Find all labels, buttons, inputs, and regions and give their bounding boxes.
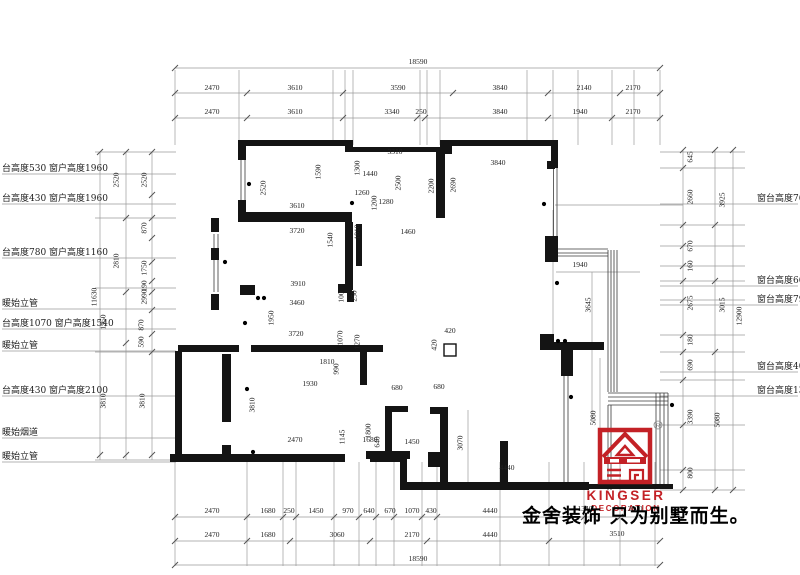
window-note-label: 窗台高度760 xyxy=(757,191,800,204)
wall-segment xyxy=(175,351,182,462)
wall-segment xyxy=(547,161,555,169)
reference-dot xyxy=(556,339,560,343)
wall-segment xyxy=(222,354,231,422)
wall-segment xyxy=(238,146,246,160)
slogan-text: 金舍装饰 只为别墅而生。 xyxy=(522,501,750,528)
dimension-label: 3610 xyxy=(288,107,303,116)
logo-house-icon xyxy=(600,430,650,482)
window-note-label: 暖始立管 xyxy=(2,449,38,462)
wall-segment xyxy=(238,200,246,213)
wall-segment xyxy=(452,140,558,146)
dimension-label: 11630 xyxy=(90,288,99,306)
dimension-label: 3060 xyxy=(330,530,345,539)
dimension-label: 1930 xyxy=(303,379,318,388)
wall-segment xyxy=(400,482,589,490)
wall-segment xyxy=(385,406,392,454)
reference-dot xyxy=(569,395,573,399)
dimension-label: 3015 xyxy=(718,298,727,313)
dimension-label: 18590 xyxy=(409,57,428,66)
dimension-label: 3840 xyxy=(493,107,508,116)
reference-dot xyxy=(251,450,255,454)
dimension-label: 1300 xyxy=(353,161,362,176)
dimension-label: 1200 xyxy=(370,196,379,211)
dimension-label: 2470 xyxy=(205,107,220,116)
dimension-label: 3610 xyxy=(288,83,303,92)
dimension-label: 970 xyxy=(342,506,353,515)
wall-segment xyxy=(240,285,255,295)
dimension-label: 2200 xyxy=(427,179,436,194)
wall-segment xyxy=(360,352,367,385)
dimension-label: 2170 xyxy=(626,107,641,116)
dimension-label: 2500 xyxy=(394,176,403,191)
reference-dot xyxy=(247,182,251,186)
dimension-label: 1750 xyxy=(140,261,149,276)
dimension-label: 12900 xyxy=(735,307,744,326)
registered-mark-letter: R xyxy=(656,424,660,430)
dimension-label: 680 xyxy=(433,382,444,391)
wall-segment xyxy=(238,140,348,146)
dimension-label: 250 xyxy=(283,506,294,515)
reference-dot xyxy=(245,387,249,391)
wall-segment xyxy=(211,248,219,260)
dimension-label: 1540 xyxy=(326,233,335,248)
dimension-label: 160 xyxy=(686,260,695,271)
dimension-label: 430 xyxy=(425,506,436,515)
dimension-label: 1145 xyxy=(338,430,347,445)
wall-segment xyxy=(540,342,604,350)
wall-segment xyxy=(436,148,445,218)
wall-segment xyxy=(440,407,448,484)
wall-segment xyxy=(561,350,573,376)
reference-dots xyxy=(223,182,674,454)
window-note-label: 暖始立管 xyxy=(2,296,38,309)
dimension-label: 2660 xyxy=(686,190,695,205)
wall-segment xyxy=(500,441,508,482)
dimension-label: 3645 xyxy=(584,298,593,313)
dimension-label: 3390 xyxy=(686,410,695,425)
dimension-label: 4440 xyxy=(483,530,498,539)
dimension-label: 3910 xyxy=(291,279,306,288)
dimension-label: 640 xyxy=(373,436,382,447)
dimension-label: 3810 xyxy=(138,394,147,409)
dimension-label: 1280 xyxy=(379,197,394,206)
reference-dot xyxy=(350,201,354,205)
walls xyxy=(170,140,673,490)
dimension-label: 1070 xyxy=(405,506,420,515)
dimension-label: 870 xyxy=(140,222,149,233)
dimension-label: 2470 xyxy=(205,530,220,539)
dimension-label: 1940 xyxy=(573,260,588,269)
wall-segment xyxy=(170,454,345,462)
reference-dot xyxy=(542,202,546,206)
dimension-label: 3840 xyxy=(491,158,506,167)
reference-dot xyxy=(256,296,260,300)
dimension-label: 3340 xyxy=(385,107,400,116)
dimension-label: 2170 xyxy=(405,530,420,539)
window-note-label: 台高度780 窗户高度1160 xyxy=(2,245,108,258)
dimension-label: 2675 xyxy=(686,296,695,311)
dimension-label: 800 xyxy=(686,467,695,478)
reference-dot xyxy=(670,403,674,407)
dimension-label: 3720 xyxy=(289,329,304,338)
structural-column xyxy=(444,344,456,356)
dimension-label: 1450 xyxy=(309,506,324,515)
dimension-label: 5080 xyxy=(589,411,598,426)
wall-segment xyxy=(540,334,554,343)
dimension-label: 250 xyxy=(415,107,426,116)
window-note-label: 窗台高度400 xyxy=(757,359,800,372)
dimension-label: 3840 xyxy=(493,83,508,92)
dimension-label: 2140 xyxy=(577,83,592,92)
dimension-label: 1810 xyxy=(353,225,362,240)
dimension-label: 3810 xyxy=(248,398,257,413)
dimension-label: 1950 xyxy=(267,311,276,326)
wall-segment xyxy=(366,451,410,459)
dimension-label: 2470 xyxy=(288,435,303,444)
dimension-label: 4440 xyxy=(500,463,515,472)
dimension-label: 250 xyxy=(350,290,359,301)
reference-dot xyxy=(262,296,266,300)
wall-segment xyxy=(345,140,353,152)
reference-dot xyxy=(243,321,247,325)
dimension-label: 420 xyxy=(444,326,455,335)
window-note-label: 窗台高度660 xyxy=(757,273,800,286)
dimension-label: 1680 xyxy=(261,530,276,539)
dimension-label: 640 xyxy=(363,506,374,515)
dimension-label: 670 xyxy=(686,240,695,251)
dimension-label: 680 xyxy=(391,383,402,392)
reference-dot xyxy=(555,281,559,285)
dimension-label: 100 xyxy=(337,291,346,302)
floorplan-canvas: R KINGSER DECORATION 1859024703610359038… xyxy=(0,0,800,575)
wall-segment xyxy=(211,218,219,232)
dimension-label: 3720 xyxy=(290,226,305,235)
dimension-label: 590 xyxy=(137,336,146,347)
dimension-label: 3460 xyxy=(290,298,305,307)
window-note-label: 台高度430 窗户高度2100 xyxy=(2,383,108,396)
window-note-label: 窗台高度1300 xyxy=(757,383,800,396)
dimension-label: 1270 xyxy=(353,335,362,350)
wall-segment xyxy=(251,345,383,352)
window-note-label: 暖始立管 xyxy=(2,338,38,351)
window-note-label: 台高度430 窗户高度1960 xyxy=(2,191,108,204)
dimension-label: 5080 xyxy=(713,413,722,428)
window-note-label: 台高度1070 窗户高度1540 xyxy=(2,316,114,329)
dimension-label: 1680 xyxy=(261,506,276,515)
dimension-label: 670 xyxy=(384,506,395,515)
window-note-label: 窗台高度790 xyxy=(757,292,800,305)
dimension-label: 2170 xyxy=(626,83,641,92)
wall-segment xyxy=(211,294,219,310)
dimension-label: 3510 xyxy=(610,529,625,538)
dimension-label: 2690 xyxy=(449,178,458,193)
dimension-label: 645 xyxy=(686,151,695,162)
dimension-label: 870 xyxy=(137,319,146,330)
extension-lines xyxy=(2,68,798,566)
dimension-label: 1800 xyxy=(364,424,373,439)
wall-segment xyxy=(178,345,239,352)
wall-segment xyxy=(440,140,452,154)
dimension-label: 2520 xyxy=(112,173,121,188)
window-note-label: 台高度530 窗户高度1960 xyxy=(2,161,108,174)
dimension-label: 990 xyxy=(332,363,341,374)
dimension-label: 2470 xyxy=(205,506,220,515)
dimension-label: 1590 xyxy=(314,165,323,180)
dimension-label: 2520 xyxy=(259,181,268,196)
dimension-label: 1450 xyxy=(405,437,420,446)
dimension-label: 1260 xyxy=(355,188,370,197)
dimension-label: 3925 xyxy=(718,193,727,208)
dimension-label: 420 xyxy=(430,339,439,350)
dimension-label: 18590 xyxy=(409,554,428,563)
reference-dot xyxy=(563,339,567,343)
wall-segment xyxy=(238,212,352,222)
dimension-label: 3590 xyxy=(391,83,406,92)
dimension-label: 690 xyxy=(686,359,695,370)
dimension-label: 3070 xyxy=(456,436,465,451)
dimension-label: 3610 xyxy=(290,201,305,210)
kingser-logo: R KINGSER DECORATION xyxy=(586,421,665,513)
dimension-label: 1440 xyxy=(363,169,378,178)
window-note-label: 暖始烟道 xyxy=(2,425,38,438)
dimension-label: 3310 xyxy=(388,147,403,156)
dimension-label: 2810 xyxy=(112,254,121,269)
dimension-label: 2470 xyxy=(205,83,220,92)
dimension-label: 1940 xyxy=(573,107,588,116)
dimension-label: 1070 xyxy=(336,331,345,346)
dimension-label: 4440 xyxy=(483,506,498,515)
wall-segment xyxy=(428,452,441,467)
wall-segment xyxy=(545,236,558,262)
dimension-label: 2990 xyxy=(140,290,149,305)
dimension-label: 1460 xyxy=(401,227,416,236)
reference-dot xyxy=(223,260,227,264)
dimension-label: 2520 xyxy=(140,173,149,188)
dimension-label: 180 xyxy=(686,334,695,345)
